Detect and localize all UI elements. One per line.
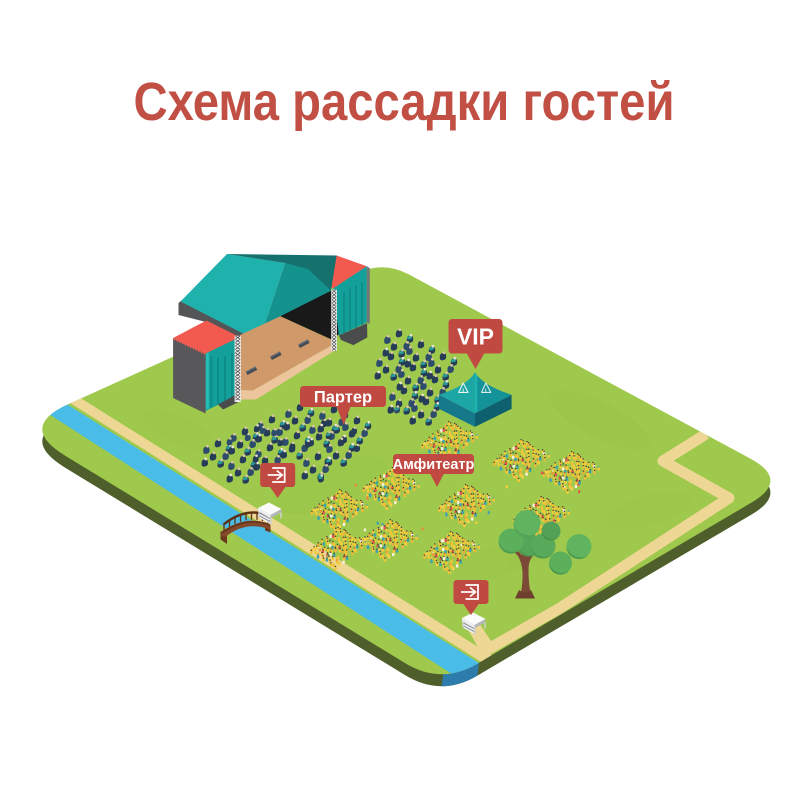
svg-text:Партер: Партер [314, 388, 372, 406]
svg-text:VIP: VIP [457, 324, 494, 350]
svg-text:Амфитеатр: Амфитеатр [393, 457, 475, 473]
svg-text:Схема рассадки гостей: Схема рассадки гостей [134, 72, 675, 132]
